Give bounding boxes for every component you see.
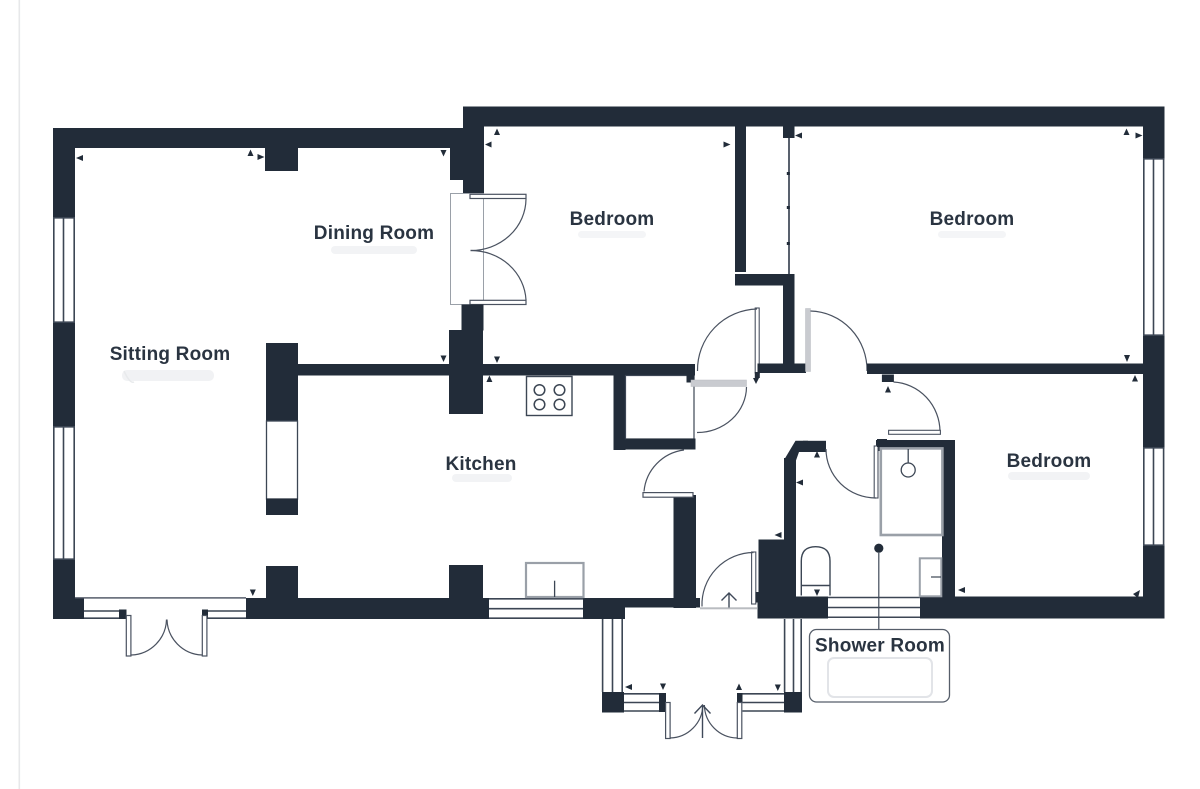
svg-text:Kitchen: Kitchen	[445, 454, 516, 475]
svg-text:Dining Room: Dining Room	[314, 223, 434, 244]
svg-text:Shower Room: Shower Room	[815, 636, 945, 657]
svg-text:Bedroom: Bedroom	[1007, 451, 1092, 472]
svg-text:Bedroom: Bedroom	[570, 209, 655, 230]
svg-text:Sitting Room: Sitting Room	[110, 344, 231, 365]
svg-text:Bedroom: Bedroom	[930, 209, 1015, 230]
